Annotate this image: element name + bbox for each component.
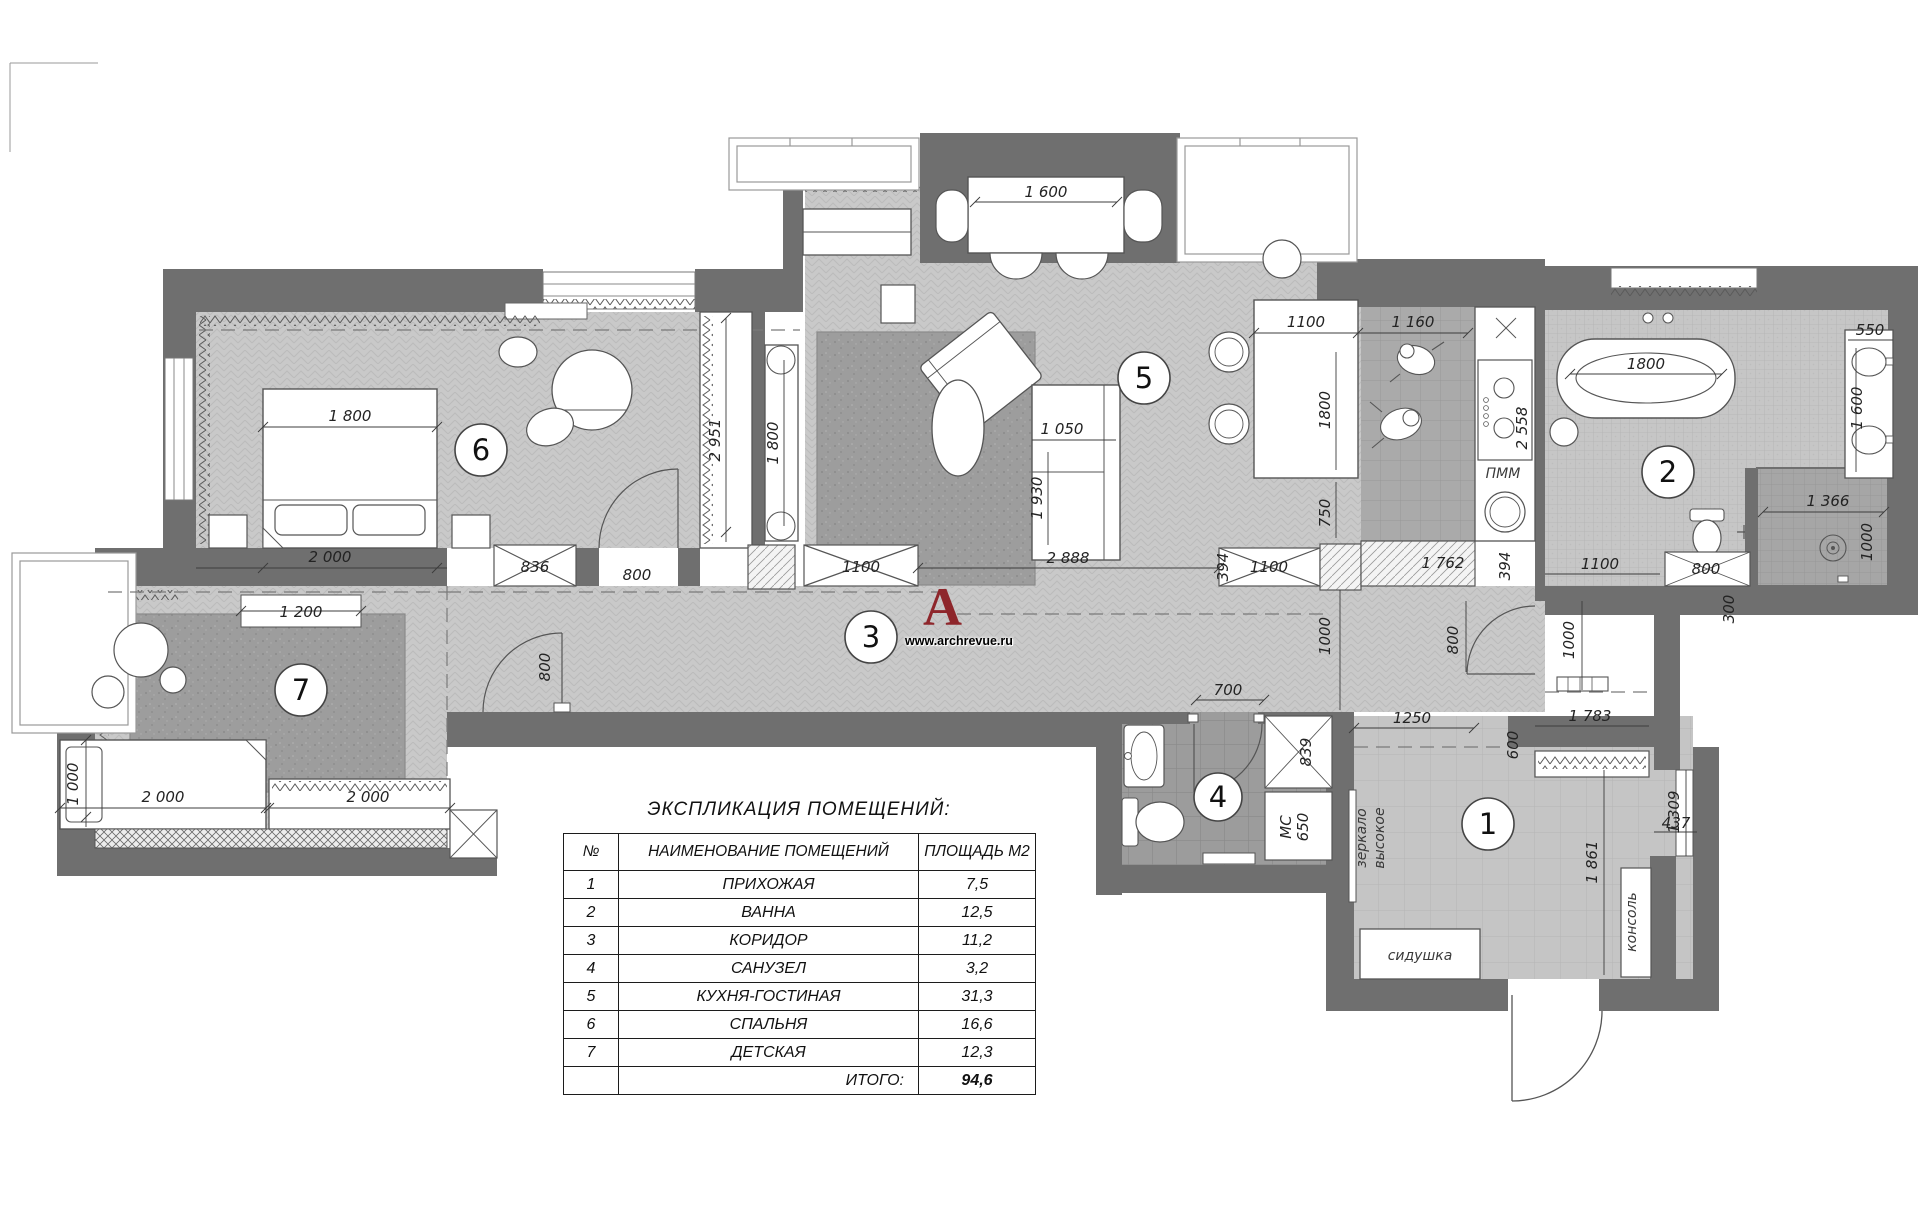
room-circle-hall: 1 — [1462, 798, 1514, 850]
coffee-table — [932, 380, 984, 476]
legend-row: 1 ПРИХОЖАЯ 7,5 — [564, 871, 1036, 899]
legend-col-name: НАИМЕНОВАНИЕ ПОМЕЩЕНИЙ — [619, 834, 919, 871]
room-circle-corridor: 3 — [845, 611, 897, 663]
stool — [1550, 418, 1578, 446]
legend-row: 4 САНУЗЕЛ 3,2 — [564, 955, 1036, 983]
dim-bath-1100: 1100 — [1581, 555, 1619, 573]
dim-children-rug: 1 200 — [280, 603, 323, 621]
dim-vanity-1600: 1 600 — [1848, 387, 1866, 430]
dim-shower-1000: 1000 — [1858, 523, 1876, 561]
dim-island-750: 750 — [1316, 499, 1334, 528]
pouf — [1263, 240, 1301, 278]
dim-island-1100: 1100 — [1287, 313, 1325, 331]
room-legend: ЭКСПЛИКАЦИЯ ПОМЕЩЕНИЙ: № НАИМЕНОВАНИЕ ПО… — [563, 799, 1035, 1095]
dim-hall-1861: 1 861 — [1583, 841, 1601, 884]
dim-1762: 1 762 — [1422, 554, 1465, 572]
dim-corridor-1000a: 1000 — [1316, 617, 1334, 655]
legend-header-row: № НАИМЕНОВАНИЕ ПОМЕЩЕНИЙ ПЛОЩАДЬ М2 — [564, 834, 1036, 871]
svg-text:5: 5 — [1135, 361, 1153, 395]
legend-col-num: № — [564, 834, 619, 871]
legend-row: 3 КОРИДОР 11,2 — [564, 927, 1036, 955]
dim-bed-width: 1 800 — [329, 407, 372, 425]
dim-children-bed-w: 1 000 — [64, 763, 82, 806]
dim-wc-mc: МС — [1277, 815, 1295, 839]
logo-url: www.archrevue.ru — [905, 634, 1025, 648]
label-mirror-line2: высокое — [1372, 807, 1388, 868]
legend-col-area: ПЛОЩАДЬ М2 — [919, 834, 1036, 871]
legend-title: ЭКСПЛИКАЦИЯ ПОМЕЩЕНИЙ: — [563, 799, 1035, 821]
dining-chair — [936, 190, 968, 242]
legend-total-label: ИТОГО: — [619, 1067, 919, 1095]
legend-total-row: ИТОГО: 94,6 — [564, 1067, 1036, 1095]
dim-corridor-800: 800 — [1444, 626, 1462, 655]
legend-row: 7 ДЕТСКАЯ 12,3 — [564, 1039, 1036, 1067]
legend-table: № НАИМЕНОВАНИЕ ПОМЕЩЕНИЙ ПЛОЩАДЬ М2 1 ПР… — [563, 833, 1036, 1095]
dim-tv-unit: 1 800 — [764, 422, 782, 465]
watermark-logo: A www.archrevue.ru — [905, 580, 1025, 648]
toilet-tank — [1690, 509, 1724, 521]
dining-chair — [1124, 190, 1162, 242]
dim-wc-door-700: 700 — [1214, 681, 1243, 699]
legend-row: 6 СПАЛЬНЯ 16,6 — [564, 1011, 1036, 1039]
dim-closet836: 836 — [521, 558, 550, 576]
sheet-corner-marks — [10, 63, 98, 152]
room-circle-children: 7 — [275, 664, 327, 716]
svg-text:6: 6 — [472, 433, 490, 467]
logo-letter: A — [923, 580, 1025, 634]
room-circle-kitchen-living: 5 — [1118, 352, 1170, 404]
dim-island-1160: 1 160 — [1392, 313, 1435, 331]
legend-row: 5 КУХНЯ-ГОСТИНАЯ 31,3 — [564, 983, 1036, 1011]
dim-closet1100-left: 1100 — [842, 558, 880, 576]
radiator — [1557, 677, 1608, 691]
legend-total-value: 94,6 — [919, 1067, 1036, 1095]
dim-hall-1250: 1250 — [1393, 709, 1431, 727]
pouf — [92, 676, 124, 708]
dim-300: 300 — [1720, 595, 1738, 624]
crosshatch-strip — [95, 829, 447, 848]
wc-toilet — [1136, 802, 1184, 842]
dim-bedroom-door: 800 — [623, 566, 652, 584]
pouf — [160, 667, 186, 693]
dim-vanity-550: 550 — [1856, 321, 1885, 339]
floor-plan-sheet: 1 800 2 000 836 800 2 951 1 800 1 200 1 … — [0, 0, 1920, 1231]
dim-corridor-1000b: 1000 — [1560, 621, 1578, 659]
label-pmm: ПММ — [1486, 466, 1521, 482]
legend-row: 2 ВАННА 12,5 — [564, 899, 1036, 927]
label-seat: сидушка — [1388, 948, 1453, 964]
pouf — [499, 337, 537, 367]
dim-kitchen-2558: 2 558 — [1513, 407, 1531, 450]
dim-children-wardrobe: 2 000 — [347, 788, 390, 806]
dim-bed-length: 2 000 — [309, 548, 352, 566]
dim-children-door: 800 — [536, 653, 554, 682]
dim-sofa-length: 1 930 — [1028, 477, 1046, 520]
entry-door — [1512, 995, 1602, 1101]
dim-hall-600: 600 — [1504, 731, 1522, 760]
label-console: консоль — [1624, 892, 1640, 952]
dim-wardrobe: 2 951 — [706, 419, 724, 462]
dim-island-1800: 1800 — [1316, 391, 1334, 429]
dim-sofa-width: 1 050 — [1041, 420, 1084, 438]
room-circle-bedroom: 6 — [455, 424, 507, 476]
dim-hall-1783: 1 783 — [1569, 707, 1612, 725]
dim-bath-closet-800: 800 — [1692, 560, 1721, 578]
nightstand — [209, 515, 247, 548]
toilet — [1693, 520, 1721, 556]
wc-bench — [1203, 853, 1255, 864]
svg-text:1: 1 — [1479, 807, 1497, 841]
side-table — [881, 285, 915, 323]
dim-hall-437: 437 — [1662, 814, 1691, 832]
svg-text:7: 7 — [292, 673, 310, 707]
sink — [1852, 348, 1886, 376]
dim-394-right: 394 — [1496, 552, 1514, 581]
dim-394-left: 394 — [1214, 553, 1232, 582]
dim-dining-table: 1 600 — [1025, 183, 1068, 201]
dim-shower-1366: 1 366 — [1807, 492, 1850, 510]
nightstand — [452, 515, 490, 548]
dim-bathtub: 1800 — [1627, 355, 1665, 373]
label-mirror-line1: зеркало — [1354, 808, 1370, 868]
dim-children-bed-l: 2 000 — [142, 788, 185, 806]
svg-text:3: 3 — [862, 620, 880, 654]
pouf — [114, 623, 168, 677]
dim-closet1100-right: 1100 — [1250, 558, 1288, 576]
dim-wc-839: 839 — [1297, 738, 1315, 767]
dim-wc-650: 650 — [1294, 813, 1312, 842]
room-circle-wc: 4 — [1194, 773, 1242, 821]
room-circle-bath: 2 — [1642, 446, 1694, 498]
svg-text:2: 2 — [1659, 455, 1677, 489]
dim-corridor-2888: 2 888 — [1047, 549, 1090, 567]
svg-text:4: 4 — [1209, 780, 1227, 814]
